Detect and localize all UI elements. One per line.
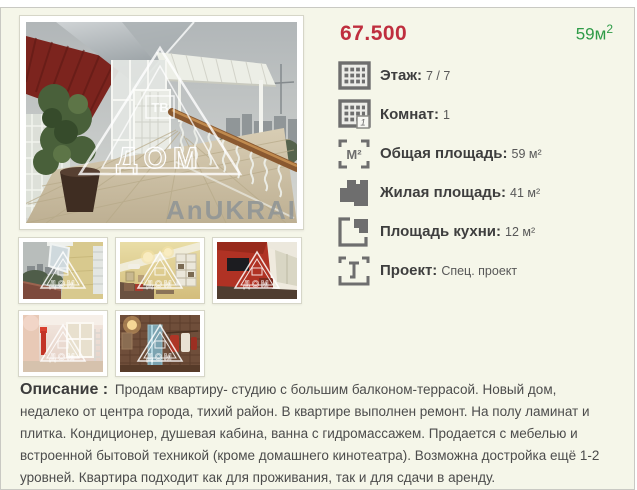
detail-label: Площадь кухни: bbox=[380, 223, 501, 240]
thumbnail-strip: ДОМ ДОМ bbox=[18, 237, 314, 377]
detail-value: 41 м² bbox=[510, 186, 540, 200]
description-block: Описание : Продам квартиру- студию с бол… bbox=[20, 379, 619, 489]
project-icon bbox=[337, 255, 371, 287]
detail-row-total-area: М² Общая площадь: 59 м² bbox=[337, 137, 627, 170]
detail-label: Комнат: bbox=[380, 106, 439, 123]
thumbnail-pink-room[interactable]: ДОМ bbox=[18, 310, 108, 377]
detail-row-project: Проект: Спец. проект bbox=[337, 254, 627, 287]
thumbnail-living-room-yellow[interactable]: ДОМ bbox=[115, 237, 205, 304]
watermark-badge-text: ТВ bbox=[151, 100, 168, 115]
detail-row-kitchen-area: Площадь кухни: 12 м² bbox=[337, 215, 627, 248]
detail-row-living-area: Жилая площадь: 41 м² bbox=[337, 176, 627, 209]
svg-text:ДОМ: ДОМ bbox=[147, 352, 174, 362]
detail-label: Этаж: bbox=[380, 67, 422, 84]
svg-text:1: 1 bbox=[360, 118, 365, 129]
thumbnail-red-room-art: ДОМ bbox=[217, 242, 297, 299]
svg-text:ДОМ: ДОМ bbox=[50, 352, 77, 362]
svg-text:ДОМ: ДОМ bbox=[50, 279, 77, 289]
floors-icon bbox=[337, 61, 371, 90]
detail-label: Проект: bbox=[380, 262, 437, 279]
thumbnail-living-room-art: ДОМ bbox=[120, 242, 200, 299]
area-badge: 59м2 bbox=[576, 22, 613, 45]
svg-text:ДОМ: ДОМ bbox=[147, 279, 174, 289]
detail-value: 12 м² bbox=[505, 225, 535, 239]
thumbnail-balcony-view[interactable]: ДОМ bbox=[18, 237, 108, 304]
detail-value: Спец. проект bbox=[441, 264, 517, 278]
main-photo[interactable]: ТВ ДОМ AnUKRAIN bbox=[19, 15, 304, 230]
photo-overlay-text: AnUKRAIN bbox=[166, 195, 297, 223]
thumbnail-pink-room-art: ДОМ bbox=[23, 315, 103, 372]
details-list: Этаж: 7 / 7 1 Комнат: 1 М² Общ bbox=[337, 59, 627, 293]
thumbnail-bathroom-art: ДОМ bbox=[120, 315, 200, 372]
description-heading: Описание : bbox=[20, 381, 108, 398]
watermark-word-text: ДОМ bbox=[116, 142, 204, 175]
price-row: 67.500 59м2 bbox=[330, 22, 613, 46]
thumbnail-balcony-art: ДОМ bbox=[23, 242, 103, 299]
total-area-icon: М² bbox=[337, 138, 371, 170]
thumbnail-bathroom-tiles[interactable]: ДОМ bbox=[115, 310, 205, 377]
detail-value: 1 bbox=[443, 108, 450, 122]
detail-value: 7 / 7 bbox=[426, 69, 450, 83]
kitchen-area-icon bbox=[337, 216, 371, 248]
detail-label: Жилая площадь: bbox=[380, 184, 506, 201]
svg-text:ДОМ: ДОМ bbox=[244, 279, 271, 289]
detail-row-floor: Этаж: 7 / 7 bbox=[337, 59, 627, 92]
rooms-icon: 1 bbox=[337, 99, 371, 130]
detail-row-rooms: 1 Комнат: 1 bbox=[337, 98, 627, 131]
price: 67.500 bbox=[330, 22, 407, 46]
thumbnail-red-wall-room[interactable]: ДОМ bbox=[212, 237, 302, 304]
detail-value: 59 м² bbox=[512, 147, 542, 161]
svg-text:М²: М² bbox=[346, 147, 362, 162]
detail-label: Общая площадь: bbox=[380, 145, 508, 162]
main-photo-art: ТВ ДОМ AnUKRAIN bbox=[26, 22, 297, 223]
living-area-icon bbox=[337, 177, 371, 209]
